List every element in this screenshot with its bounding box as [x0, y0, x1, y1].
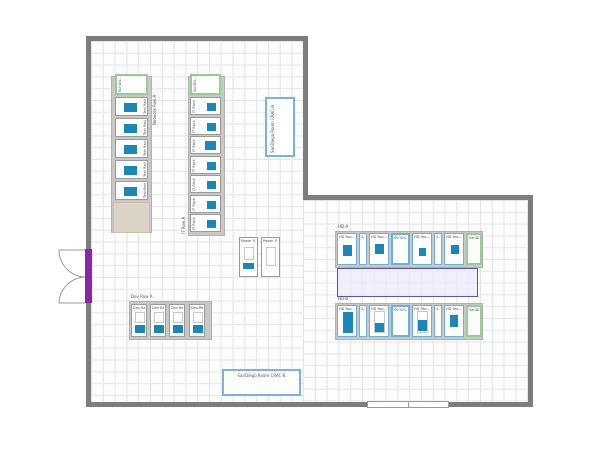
rack-label: SD Vm...: [394, 236, 407, 240]
wall-opening-bottom: [367, 401, 449, 408]
rack-sd-vm[interactable]: SD Vm...: [391, 233, 410, 265]
rack-label: IT Rack 5: [192, 177, 196, 191]
rack-capacity-block: [343, 245, 352, 256]
rack-inner-outline: [193, 312, 203, 323]
rack-label: HD Rac...: [339, 235, 355, 239]
rack-inner-outline: [266, 247, 276, 266]
rack-capacity-block: [207, 181, 216, 189]
rack-label: SunDis...: [193, 77, 197, 92]
rack-it-rack-2[interactable]: IT Rack 2: [190, 117, 221, 135]
rack-it-rack-3[interactable]: IT Rack 3: [190, 136, 221, 154]
rack-label: IT Rack 1: [192, 99, 196, 113]
rack-it-rack-5[interactable]: IT Rack 5: [190, 175, 221, 193]
rack-test-rack-1[interactable]: Test Rack 1: [115, 97, 148, 116]
rack-capacity-block: [154, 325, 164, 333]
rack-capacity-block: [124, 187, 137, 196]
row-label-network-row-a: Network Row A: [152, 79, 157, 125]
rack-label: IT Rack 3: [192, 138, 196, 152]
rack-inner-outline: [244, 247, 254, 260]
rack-label: HD Rac...: [446, 307, 462, 311]
rack-label: HD Rac...: [371, 307, 387, 311]
rack-label: S...: [436, 235, 440, 239]
rack-inner-outline: [173, 312, 183, 323]
rack-label: Test Rack 5: [143, 183, 147, 198]
rack-capacity-block: [418, 320, 427, 331]
rack-hd-rac[interactable]: HD Rac...: [337, 305, 357, 337]
rack-label: IT Rack 7: [192, 216, 196, 230]
rack-label: S...: [361, 307, 365, 311]
rack-label: SunDis...: [118, 77, 122, 92]
rack-label: Test Rack 3: [143, 141, 147, 156]
rack-label: SanDiego...: [469, 236, 479, 240]
wall-left: [86, 36, 91, 407]
rack-label: IT Rack 2: [192, 119, 196, 133]
rack-dev-ra[interactable]: Dev Ra...: [169, 304, 185, 337]
rack-capacity-block: [205, 141, 216, 150]
rack-label: Dev Ra...: [152, 306, 164, 310]
crac-label: SanDiego Room CRAC-B: [224, 373, 299, 378]
rack-capacity-block: [135, 325, 145, 333]
rack-capacity-block: [193, 325, 203, 333]
rack-hd-rac[interactable]: HD Rac...: [337, 233, 357, 265]
rack-capacity-block: [173, 325, 183, 333]
rack-hd-rac[interactable]: HD Rac...: [412, 305, 432, 337]
rack-s[interactable]: S...: [359, 305, 367, 337]
rack-capacity-block: [207, 123, 216, 131]
wall-opening-divider: [408, 402, 409, 407]
rack-label: HD Rac...: [414, 307, 430, 311]
rack-s[interactable]: S...: [434, 233, 442, 265]
rack-label: IT Rack 6: [192, 197, 196, 211]
row-label-it-row-a: IT Row A: [181, 206, 186, 234]
row-label-hd-a: HD-A: [338, 224, 348, 229]
wall-right: [528, 195, 533, 407]
crac-label: SanDiego Room CRAC-A: [270, 101, 275, 153]
rack-capacity-block: [207, 162, 216, 170]
rack-test-rack-5[interactable]: Test Rack 5: [115, 181, 148, 200]
rack-label: Dev Ra...: [191, 306, 203, 310]
rack-label: IT Rack 4: [192, 158, 196, 172]
wall-bottom: [86, 402, 533, 407]
rack-power-p[interactable]: Power P...: [261, 237, 280, 277]
rack-sandiego[interactable]: SanDiego...: [466, 233, 482, 265]
rack-capacity-block: [375, 244, 384, 254]
rack-hd-rac[interactable]: HD Rac...: [412, 233, 432, 265]
rack-hd-rac[interactable]: HD Rac...: [444, 305, 464, 337]
rack-it-rack-1[interactable]: IT Rack 1: [190, 97, 221, 115]
wall-upper-right: [303, 36, 308, 200]
rack-label: Test Rack 4: [143, 162, 147, 177]
rack-capacity-block: [124, 166, 137, 175]
rack-test-rack-3[interactable]: Test Rack 3: [115, 139, 148, 158]
containment-aisle[interactable]: [337, 268, 478, 297]
rack-capacity-block: [124, 145, 137, 154]
rack-capacity-block: [451, 245, 459, 254]
rack-capacity-block: [207, 103, 216, 111]
rack-capacity-block: [343, 312, 353, 333]
rack-label: SanDiego...: [469, 308, 479, 312]
rack-capacity-block: [207, 220, 216, 228]
rack-sundis[interactable]: SunDis...: [115, 74, 148, 95]
rack-sd-vm[interactable]: SD Vm...: [391, 305, 410, 337]
rack-dev-ra[interactable]: Dev Ra...: [150, 304, 166, 337]
row-label-dev-row-a: Dev Row A: [131, 294, 153, 299]
rack-label: Dev Ra...: [133, 306, 145, 310]
rack-it-rack-7[interactable]: IT Rack 7: [190, 214, 221, 232]
rack-label: HD Rac...: [446, 235, 462, 239]
rack-label: S...: [361, 235, 365, 239]
rack-sandiego[interactable]: SanDiego...: [466, 305, 482, 337]
row-spacer-zone: [113, 202, 150, 233]
rack-capacity-block: [124, 124, 137, 133]
rack-power-p[interactable]: Power P...: [239, 237, 258, 277]
rack-hd-rac[interactable]: HD Rac...: [369, 233, 389, 265]
rack-label: Power P...: [241, 239, 256, 243]
rack-capacity-block: [450, 315, 458, 327]
rack-label: S...: [436, 307, 440, 311]
rack-hd-rac[interactable]: HD Rac...: [444, 233, 464, 265]
rack-capacity-block: [207, 201, 216, 209]
rack-sundis[interactable]: SunDis...: [190, 74, 221, 95]
rack-s[interactable]: S...: [359, 233, 367, 265]
rack-label: HD Rac...: [339, 307, 355, 311]
crac-unit-sandiego-room-crac-b[interactable]: SanDiego Room CRAC-B: [222, 369, 301, 396]
rack-capacity-block: [419, 248, 426, 256]
rack-hd-rac[interactable]: HD Rac...: [369, 305, 389, 337]
rack-s[interactable]: S...: [434, 305, 442, 337]
rack-label: Test Rack 1: [143, 99, 147, 114]
rack-label: SD Vm...: [394, 308, 407, 312]
rack-capacity-block: [243, 263, 254, 269]
rack-label: HD Rac...: [414, 235, 430, 239]
crac-unit-sandiego-room-crac-a[interactable]: SanDiego Room CRAC-A: [265, 97, 295, 157]
rack-capacity-block: [375, 323, 384, 332]
rack-label: Dev Ra...: [171, 306, 183, 310]
row-label-hd-b: HD-B: [338, 296, 348, 301]
rack-it-rack-6[interactable]: IT Rack 6: [190, 195, 221, 213]
rack-dev-ra[interactable]: Dev Ra...: [131, 304, 147, 337]
door-opening[interactable]: [85, 249, 92, 303]
rack-capacity-block: [124, 103, 137, 112]
rack-inner-outline: [154, 312, 164, 323]
rack-test-rack-2[interactable]: Test Rack 2: [115, 118, 148, 137]
rack-label: Power P...: [263, 239, 278, 243]
floorplan-canvas: SunDis...Test Rack 1Test Rack 2Test Rack…: [0, 0, 600, 450]
wall-middle: [303, 195, 533, 200]
wall-top: [86, 36, 308, 41]
rack-label: HD Rac...: [371, 235, 387, 239]
rack-it-rack-4[interactable]: IT Rack 4: [190, 156, 221, 174]
rack-inner-outline: [135, 312, 145, 323]
rack-test-rack-4[interactable]: Test Rack 4: [115, 160, 148, 179]
rack-label: Test Rack 2: [143, 120, 147, 135]
rack-dev-ra[interactable]: Dev Ra...: [189, 304, 205, 337]
